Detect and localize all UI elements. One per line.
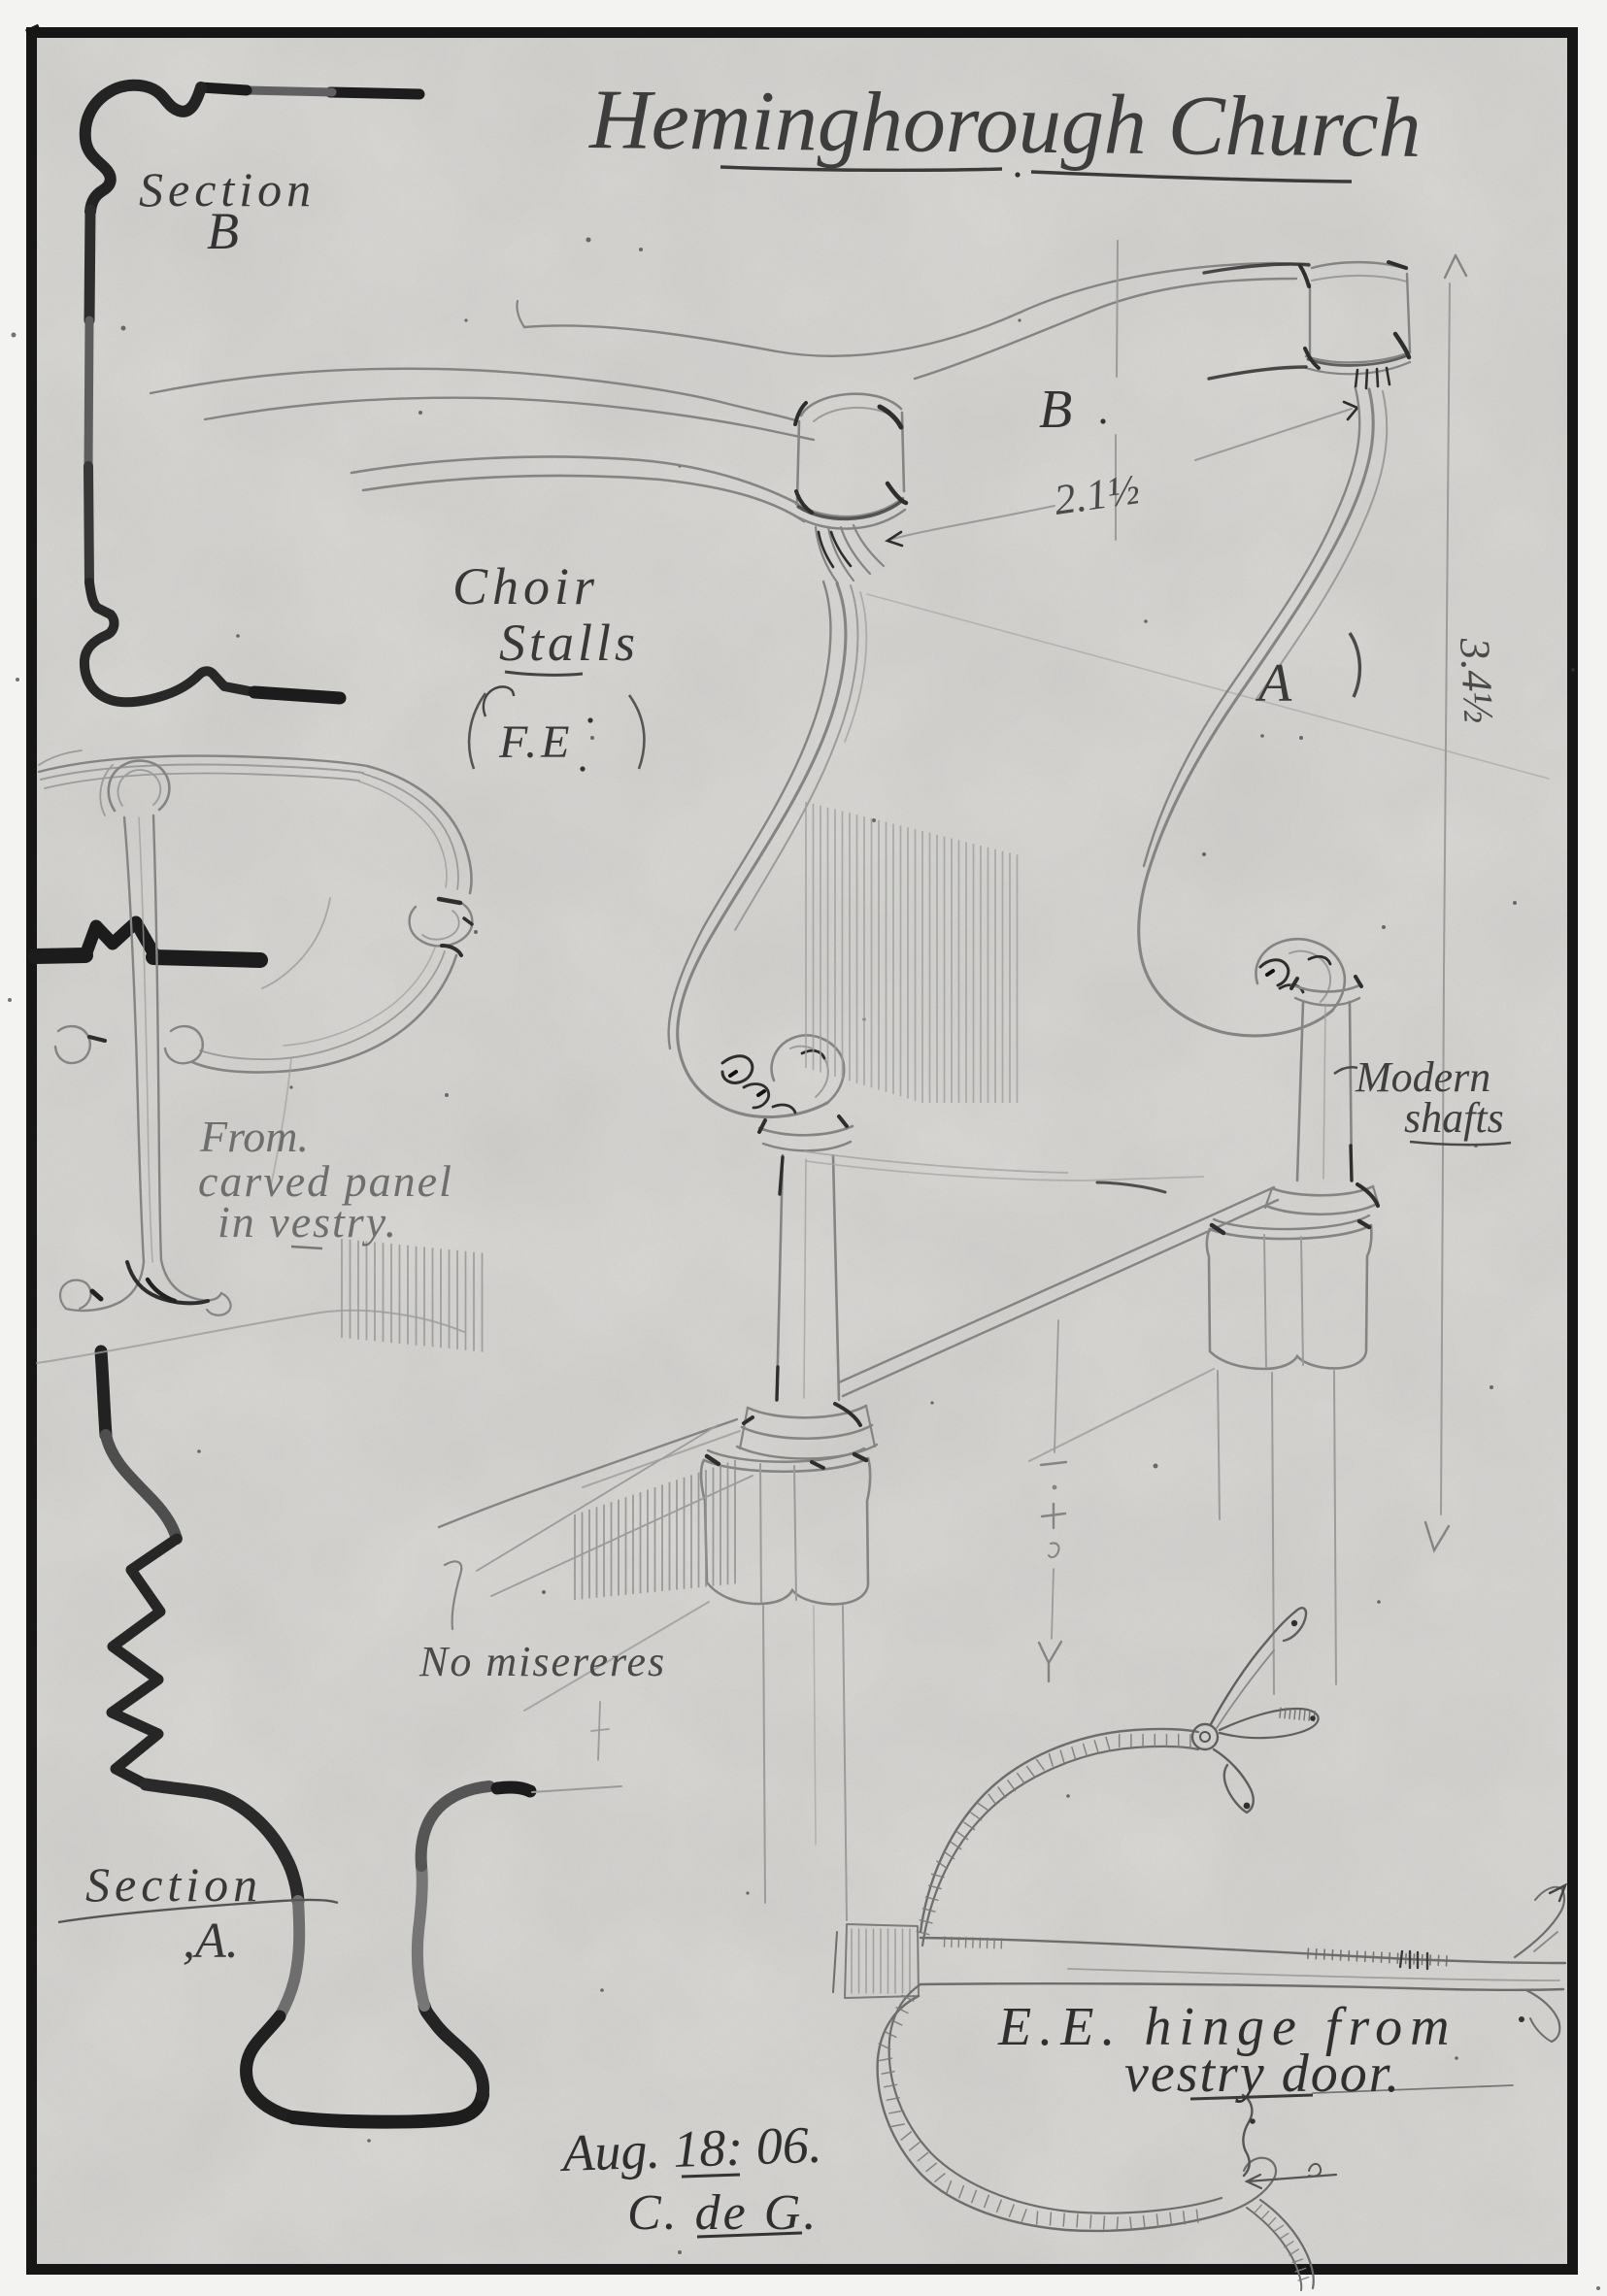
svg-text:B: B bbox=[1039, 380, 1072, 440]
svg-text:in vestry.: in vestry. bbox=[218, 1197, 398, 1247]
svg-text:B: B bbox=[207, 202, 239, 260]
svg-text:Choir: Choir bbox=[452, 557, 599, 616]
svg-text:Stalls: Stalls bbox=[499, 614, 639, 672]
svg-text:From.: From. bbox=[199, 1112, 309, 1161]
svg-text:shafts: shafts bbox=[1404, 1094, 1504, 1142]
svg-text:No misereres: No misereres bbox=[418, 1638, 666, 1685]
svg-text:Aug. 18: 06.: Aug. 18: 06. bbox=[558, 2115, 822, 2182]
svg-text:Heminghorough Church: Heminghorough Church bbox=[588, 73, 1422, 176]
svg-text:F.E: F.E bbox=[498, 716, 573, 768]
svg-text:,A.: ,A. bbox=[183, 1913, 239, 1969]
svg-text:vestry door.: vestry door. bbox=[1124, 2044, 1401, 2104]
svg-text:3.4½: 3.4½ bbox=[1451, 636, 1503, 724]
svg-text:A: A bbox=[1255, 653, 1292, 714]
